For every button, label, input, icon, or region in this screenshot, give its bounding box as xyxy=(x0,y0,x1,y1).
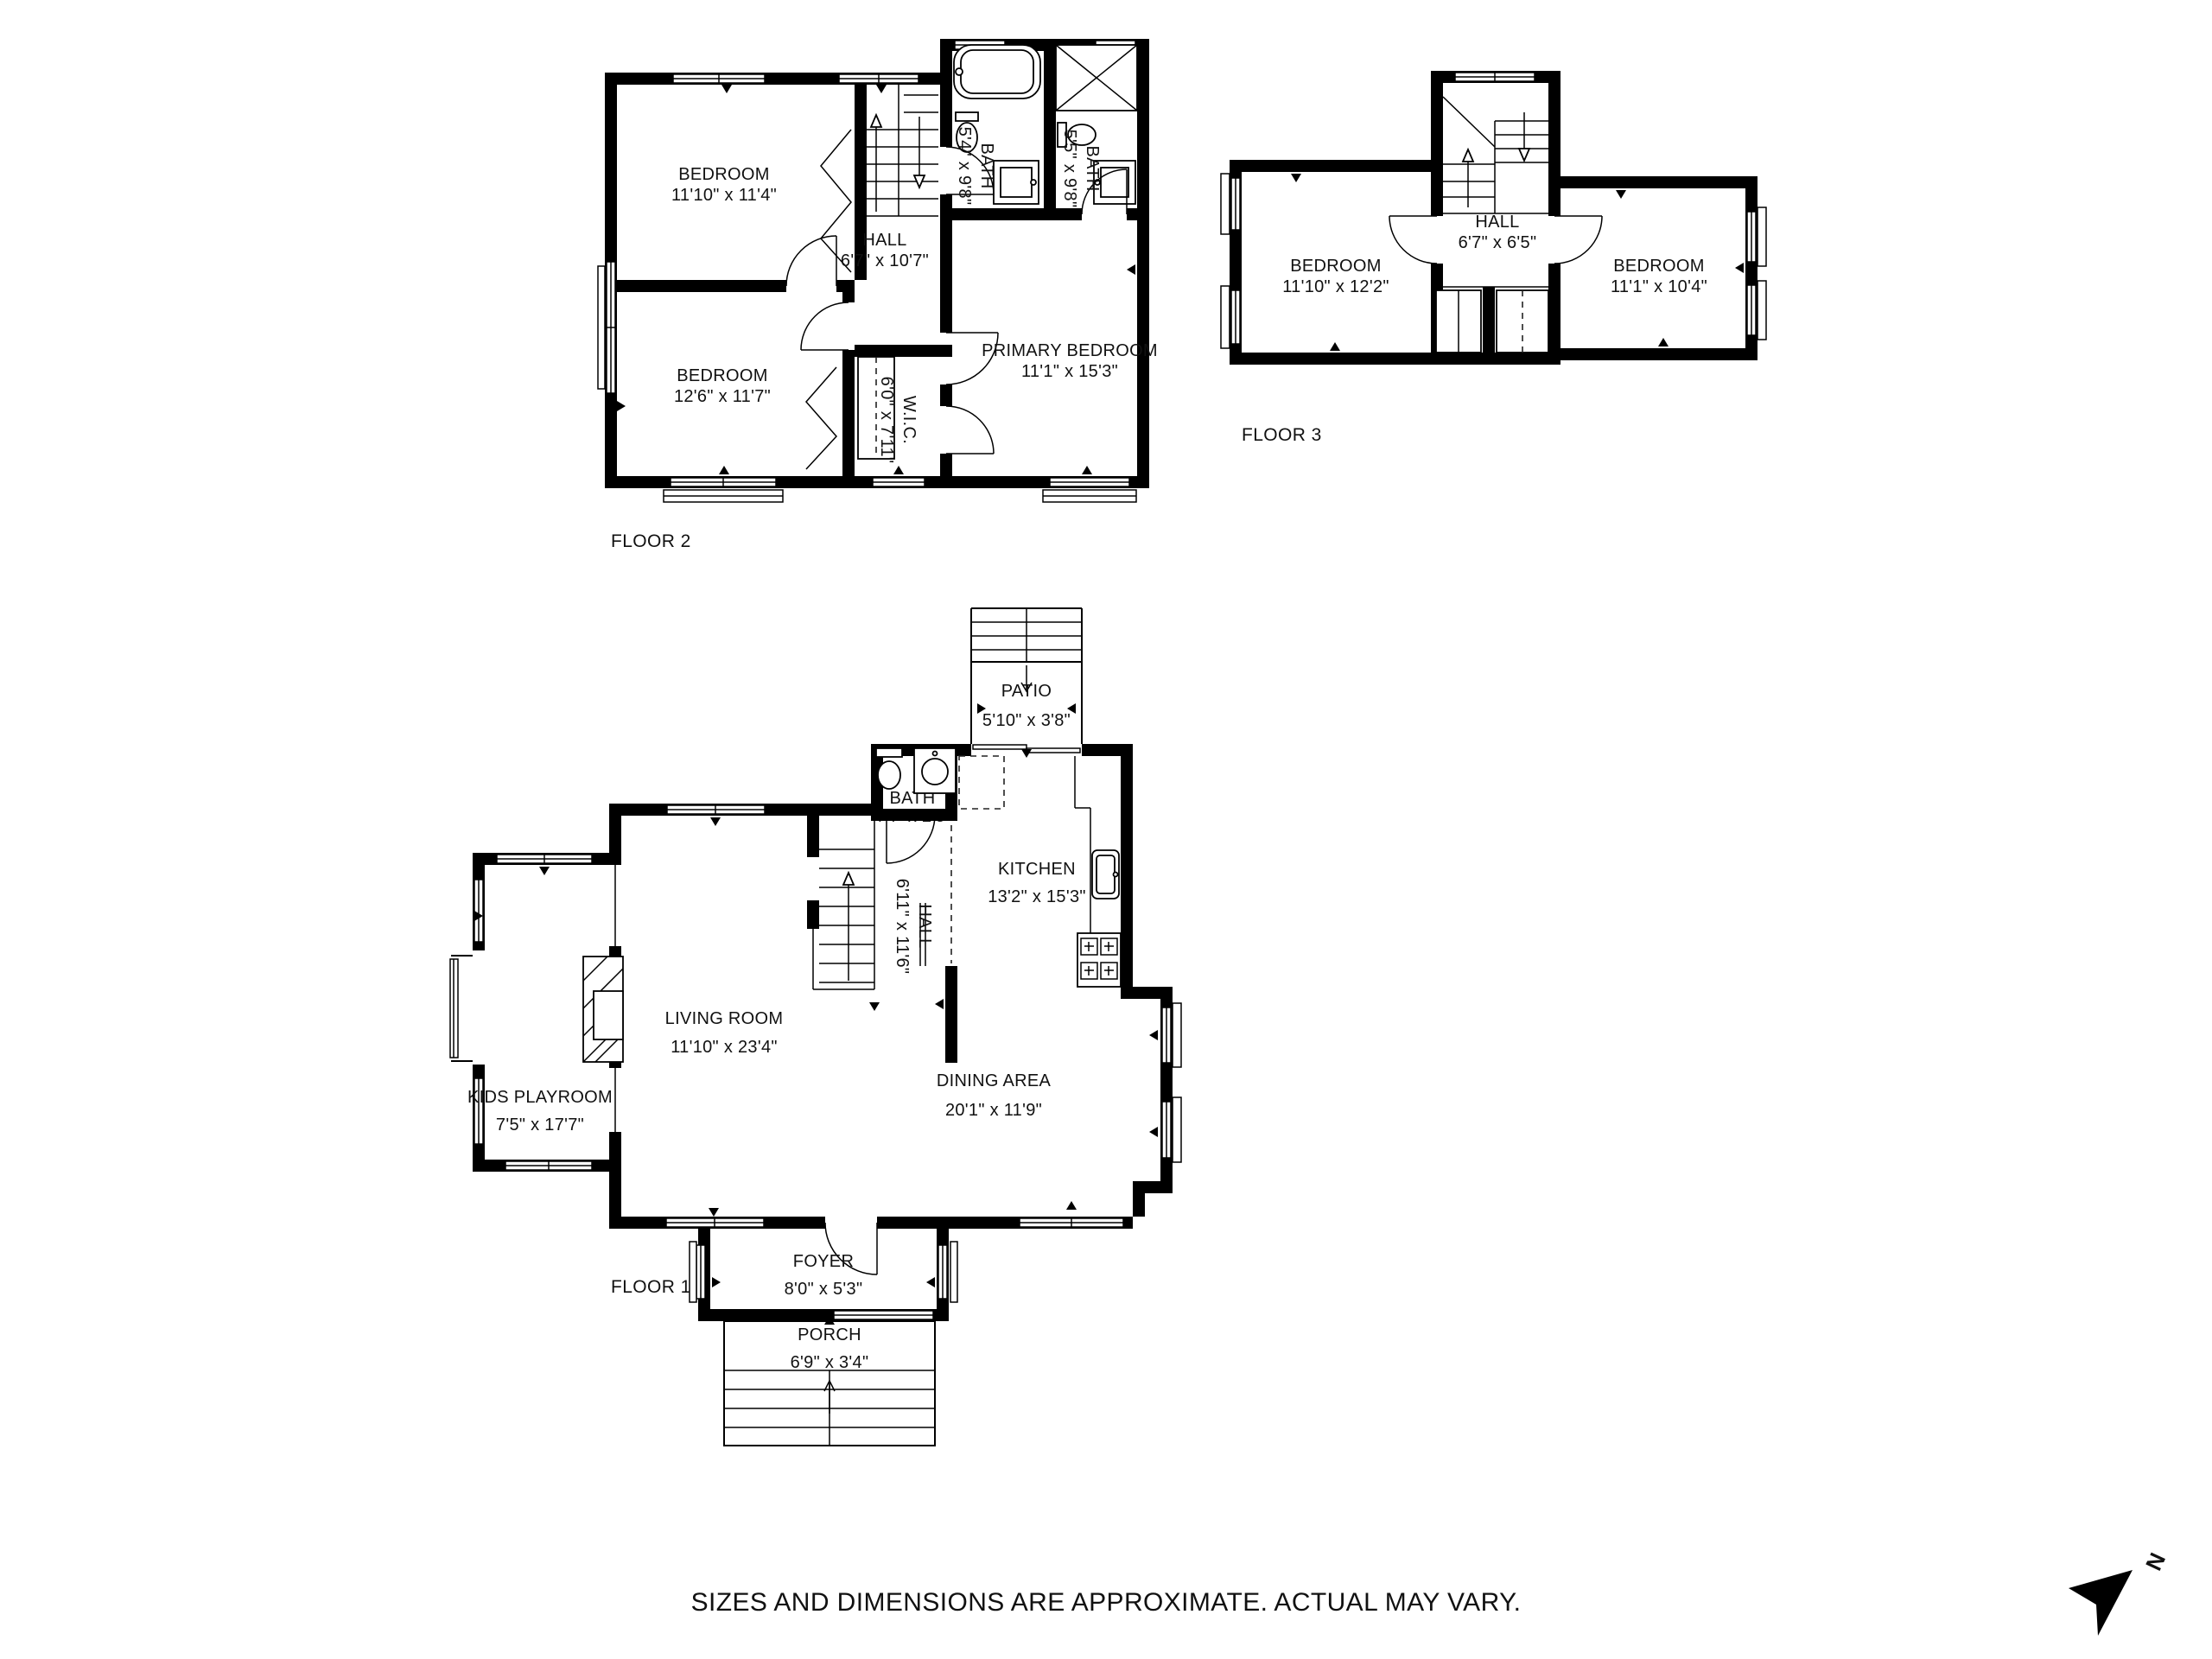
room-dims: 11'1" x 10'4" xyxy=(1611,277,1707,296)
room-dims: 6'7" x 10'7" xyxy=(841,251,929,270)
floor2-stairs-icon xyxy=(856,85,938,216)
room-label: FOYER xyxy=(793,1252,854,1271)
room-dims: 11'10" x 12'2" xyxy=(1282,277,1389,296)
floor-title: FLOOR 3 xyxy=(1242,425,1322,445)
room-label: BATH xyxy=(977,143,996,188)
room-label: PORCH xyxy=(798,1325,861,1344)
room-dims: 6'11" x 11'6" xyxy=(893,879,912,975)
sink-vanity-icon xyxy=(914,748,956,793)
room-label: W.I.C. xyxy=(899,396,918,444)
room-label: PATIO xyxy=(1001,682,1052,701)
room-label: HALL xyxy=(915,904,934,948)
room-dims: 5'5" x 9'8" xyxy=(1060,130,1079,208)
room-label: BEDROOM xyxy=(1290,257,1381,276)
floor-title: FLOOR 2 xyxy=(611,531,691,551)
room-label: LIVING ROOM xyxy=(665,1009,784,1028)
floor1-stairs-icon xyxy=(813,821,874,989)
floorplan-canvas: BEDROOM 11'10" x 11'4" HALL 6'7" x 10'7"… xyxy=(0,0,2212,1659)
room-dims: 5'4" x 9'8" xyxy=(955,127,974,206)
room-dims: 13'2" x 15'3" xyxy=(988,887,1086,906)
room-dims: 11'10" x 11'4" xyxy=(671,186,777,205)
room-dims: 6'0" x 7'11" xyxy=(877,377,896,464)
room-dims: 8'0" x 5'3" xyxy=(785,1280,863,1299)
room-label: DINING AREA xyxy=(937,1071,1052,1090)
room-dims: 6'9" x 3'4" xyxy=(791,1353,869,1372)
room-dims: 12'6" x 11'7" xyxy=(674,387,771,406)
sink-vanity-icon xyxy=(994,161,1039,204)
room-dims: 6'7" x 6'5" xyxy=(1459,233,1537,252)
floor3-stairs-icon xyxy=(1443,97,1548,213)
floor1-plan: BATH 4'4" x 2'5" xyxy=(450,608,1181,1446)
kitchen-sink-icon xyxy=(1092,850,1119,899)
compass-north-label: N xyxy=(2140,1548,2171,1574)
floor1-labels: PATIO 5'10" x 3'8" KITCHEN 13'2" x 15'3"… xyxy=(467,682,1086,1372)
room-dims: 20'1" x 11'9" xyxy=(945,1101,1042,1120)
floor2-plan: BEDROOM 11'10" x 11'4" HALL 6'7" x 10'7"… xyxy=(598,39,1158,551)
floor1-markers xyxy=(474,703,1158,1325)
room-label: HALL xyxy=(1475,213,1519,232)
room-label: KIDS PLAYROOM xyxy=(467,1088,613,1107)
room-label: BEDROOM xyxy=(677,366,767,385)
floor-title: FLOOR 1 xyxy=(611,1277,691,1297)
room-label: PRIMARY BEDROOM xyxy=(982,341,1158,360)
stove-icon xyxy=(1077,933,1121,987)
room-label: HALL xyxy=(862,231,906,250)
room-dims: 11'10" x 23'4" xyxy=(671,1038,778,1057)
room-label: BEDROOM xyxy=(678,165,769,184)
shower-icon xyxy=(1056,45,1137,111)
floor3-plan: HALL 6'7" x 6'5" BEDROOM 11'10" x 12'2" … xyxy=(1221,71,1766,445)
room-label: BEDROOM xyxy=(1613,257,1704,276)
room-dims: 11'1" x 15'3" xyxy=(1021,362,1118,381)
floor1-doors xyxy=(825,815,935,1274)
bathtub-icon xyxy=(954,45,1040,99)
room-dims: 5'10" x 3'8" xyxy=(982,711,1071,730)
toilet-icon xyxy=(876,748,902,789)
floor1-walls xyxy=(473,744,1173,1321)
room-label: KITCHEN xyxy=(998,860,1076,879)
disclaimer-text: SIZES AND DIMENSIONS ARE APPROXIMATE. AC… xyxy=(691,1588,1522,1617)
room-dims: 7'5" x 17'7" xyxy=(496,1116,584,1135)
compass-north-icon: N xyxy=(2069,1548,2171,1636)
room-label: BATH xyxy=(1083,145,1102,191)
fireplace-icon xyxy=(583,957,623,1062)
